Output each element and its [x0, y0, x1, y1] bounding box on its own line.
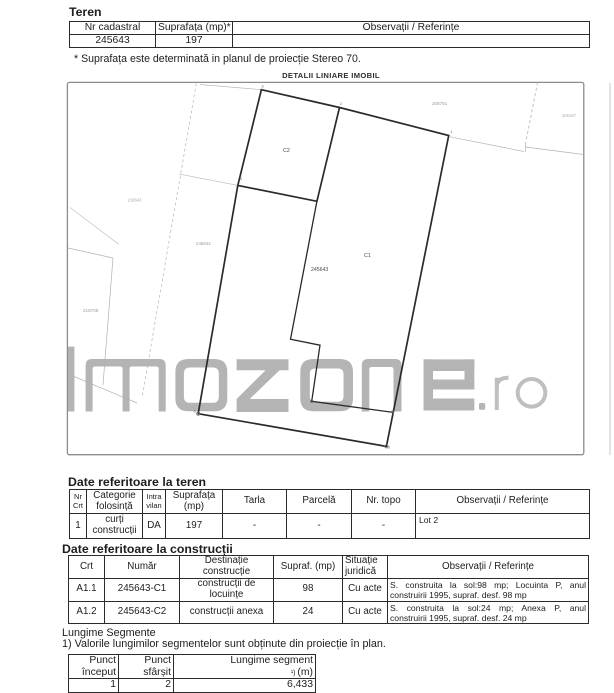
svg-text:2: 2	[340, 102, 342, 106]
svg-text:4: 4	[240, 177, 242, 181]
svg-text:208781: 208781	[432, 101, 448, 106]
svg-text:C1: C1	[364, 253, 371, 259]
svg-text:5: 5	[388, 446, 390, 450]
svg-text:216643: 216643	[128, 198, 143, 203]
svg-text:245643: 245643	[311, 267, 328, 273]
svg-text:6: 6	[194, 410, 196, 414]
svg-text:245642: 245642	[196, 241, 211, 246]
svg-text:308167: 308167	[562, 113, 577, 118]
svg-text:3: 3	[262, 85, 264, 89]
svg-text:C2: C2	[283, 148, 290, 154]
svg-text:1: 1	[451, 130, 453, 134]
svg-text:216705: 216705	[83, 308, 99, 313]
